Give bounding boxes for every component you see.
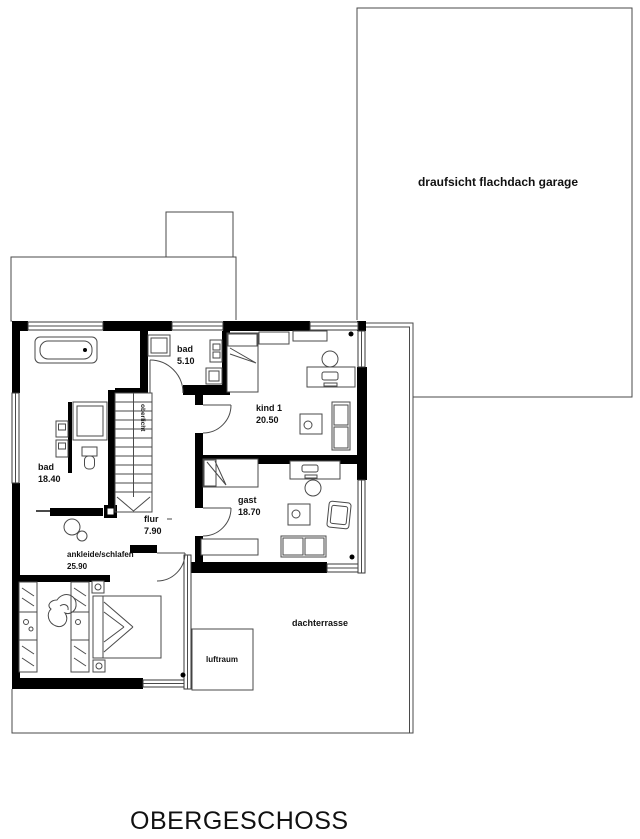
- desk-icon: [307, 367, 355, 387]
- armchair-icon: [327, 501, 352, 529]
- sideboard-icon: [201, 539, 258, 555]
- wall-top-1: [12, 321, 28, 331]
- floor-plan-drawing: draufsicht flachdach garage dachterrasse…: [0, 0, 640, 839]
- wall-left-1: [12, 331, 20, 393]
- gast-name: gast: [238, 495, 257, 505]
- nightstand-icon: [93, 660, 105, 672]
- cabinet-icon: [332, 402, 350, 450]
- bed-icon: [203, 459, 258, 487]
- shelf-icon: [293, 331, 327, 341]
- wall-basin-stub: [68, 402, 72, 473]
- bathtub-drain: [83, 348, 87, 352]
- garage-label: draufsicht flachdach garage: [418, 175, 578, 189]
- wall-bad-small-bottom: [183, 385, 223, 395]
- plant-icon: [64, 519, 80, 535]
- roof-outline-wide: [11, 257, 236, 321]
- nightstand-icon: [92, 581, 104, 593]
- side-table-icon: [288, 504, 310, 525]
- desk-icon: [290, 461, 340, 479]
- flur-name: flur: [144, 514, 159, 524]
- terrace-label: dachterrasse: [292, 618, 348, 628]
- kind1-area: 20.50: [256, 415, 279, 425]
- floor-plan-sheet: draufsicht flachdach garage dachterrasse…: [0, 0, 640, 839]
- armchair-outline: [327, 501, 352, 529]
- wall-stair-left: [108, 390, 115, 512]
- toilet-bowl-icon: [85, 456, 95, 469]
- wall-kind1-left-stub: [195, 395, 203, 405]
- wall-right: [357, 367, 367, 480]
- wall-flur-bad-small: [140, 331, 148, 393]
- stairs-label: oberlicht: [139, 404, 146, 432]
- electrical-outlet-dot: [181, 673, 186, 678]
- wardrobe-icon: [71, 582, 89, 672]
- wall-flur-schlafen: [130, 545, 157, 553]
- chair-icon: [322, 351, 338, 367]
- plant-icon: [77, 531, 87, 541]
- wall-bad-large-ankleide: [50, 508, 103, 516]
- roof-outline-small: [166, 212, 233, 257]
- roof-outlines: [11, 212, 236, 321]
- washbasin-icon: [56, 421, 68, 437]
- sheet-title: OBERGESCHOSS: [130, 807, 349, 835]
- wall-gast-bottom: [190, 562, 327, 573]
- toilet-tank-icon: [82, 447, 97, 456]
- column-core: [108, 509, 114, 515]
- electrical-outlet-dot: [349, 332, 354, 337]
- chair-icon: [305, 480, 321, 496]
- electrical-outlet-dot: [350, 555, 355, 560]
- gast-area: 18.70: [238, 507, 261, 517]
- flur-area: 7.90: [144, 526, 162, 536]
- schlafen-name: ankleide/schlafen: [67, 550, 134, 559]
- schlafen-area: 25.90: [67, 562, 88, 571]
- side-table-icon: [300, 414, 322, 434]
- bad-large-name: bad: [38, 462, 54, 472]
- bad-small-area: 5.10: [177, 356, 195, 366]
- wall-stair-top: [115, 388, 148, 393]
- shelf-icon: [259, 332, 289, 344]
- wall-bottom-left: [12, 678, 143, 689]
- wall-gast-left-1: [195, 433, 203, 508]
- kind1-name: kind 1: [256, 403, 282, 413]
- wall-top-3: [223, 321, 310, 331]
- washbasin-icon: [210, 340, 222, 362]
- wall-top-2: [103, 321, 172, 331]
- shower-icon: [73, 402, 107, 440]
- toilet-icon: [206, 368, 222, 384]
- wardrobe-icon: [19, 582, 37, 672]
- luftraum-label: luftraum: [206, 655, 238, 664]
- bad-large-area: 18.40: [38, 474, 61, 484]
- bad-small-name: bad: [177, 344, 193, 354]
